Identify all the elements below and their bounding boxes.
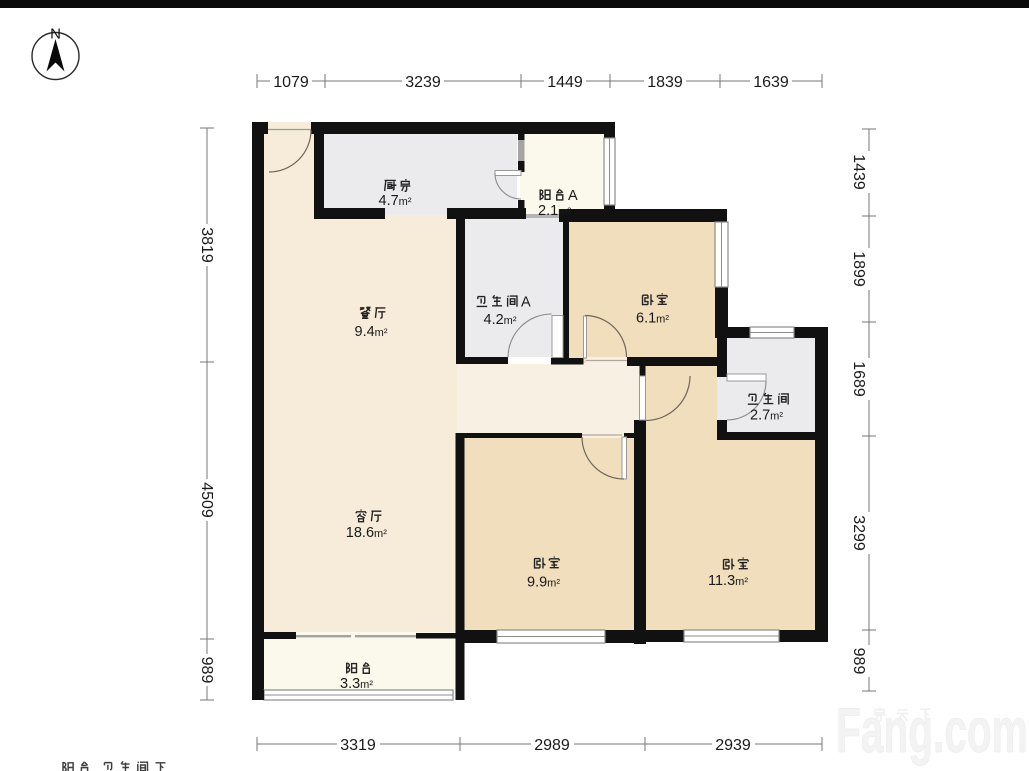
svg-text:Fang.com: Fang.com [836,696,1028,766]
svg-text:4509: 4509 [198,482,215,518]
svg-text:9.9m²: 9.9m² [527,575,560,591]
svg-text:11.3m²: 11.3m² [708,573,748,589]
svg-text:3.3m²: 3.3m² [340,676,373,692]
svg-text:6.1m²: 6.1m² [636,311,669,327]
svg-text:1839: 1839 [647,74,683,91]
svg-text:2.7m²: 2.7m² [750,408,783,424]
svg-text:1639: 1639 [753,74,789,91]
svg-text:1899: 1899 [850,251,867,287]
svg-text:4.2m²: 4.2m² [484,312,517,328]
svg-text:2939: 2939 [715,737,751,754]
svg-text:A: A [568,188,578,204]
svg-text:A: A [521,295,531,311]
svg-text:989: 989 [850,648,867,675]
svg-text:3319: 3319 [340,737,376,754]
svg-text:2.1m²: 2.1m² [538,203,571,219]
svg-text:18.6m²: 18.6m² [346,525,387,541]
svg-text:3819: 3819 [198,227,215,263]
svg-text:2989: 2989 [534,737,570,754]
svg-text:989: 989 [198,657,215,684]
svg-text:1449: 1449 [547,74,583,91]
svg-text:1689: 1689 [850,361,867,397]
svg-text:3239: 3239 [405,74,441,91]
svg-text:3299: 3299 [850,515,867,551]
svg-text:1439: 1439 [850,154,867,190]
svg-text:9.4m²: 9.4m² [355,324,388,340]
svg-text:4.7m²: 4.7m² [379,193,412,209]
svg-text:1079: 1079 [273,74,309,91]
